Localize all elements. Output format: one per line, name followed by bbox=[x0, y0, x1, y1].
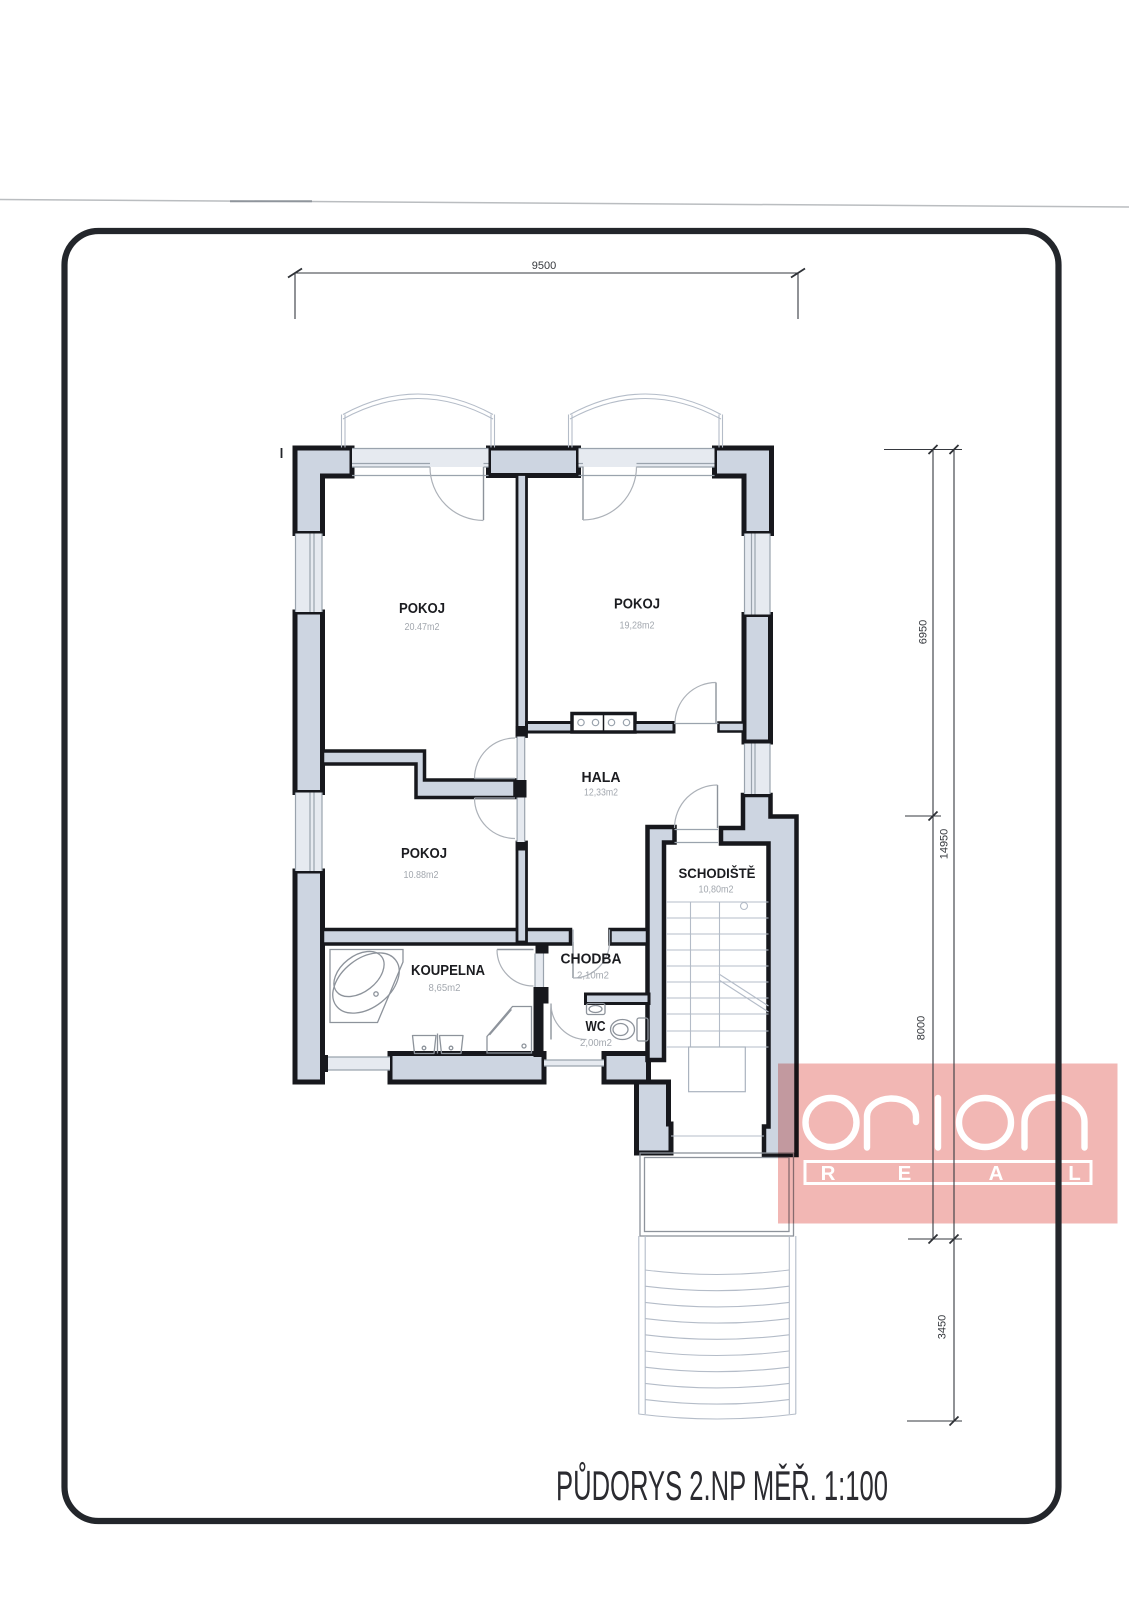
svg-text:R: R bbox=[821, 1162, 836, 1185]
svg-text:WC: WC bbox=[586, 1019, 606, 1035]
svg-text:CHODBA: CHODBA bbox=[561, 952, 623, 968]
svg-text:L: L bbox=[1068, 1162, 1081, 1185]
svg-text:2,10m2: 2,10m2 bbox=[577, 970, 609, 982]
svg-text:6950: 6950 bbox=[918, 620, 930, 644]
svg-text:POKOJ: POKOJ bbox=[614, 597, 660, 613]
svg-text:POKOJ: POKOJ bbox=[399, 601, 445, 617]
svg-text:12,33m2: 12,33m2 bbox=[584, 787, 618, 799]
svg-text:8000: 8000 bbox=[916, 1016, 928, 1040]
svg-text:A: A bbox=[989, 1162, 1004, 1185]
svg-text:3450: 3450 bbox=[937, 1315, 949, 1339]
svg-text:PŮDORYS 2.NP MĚŘ. 1:100: PŮDORYS 2.NP MĚŘ. 1:100 bbox=[556, 1460, 888, 1509]
svg-text:20.47m2: 20.47m2 bbox=[405, 621, 440, 633]
svg-text:8,65m2: 8,65m2 bbox=[429, 982, 461, 994]
svg-text:10.88m2: 10.88m2 bbox=[404, 869, 439, 881]
svg-text:KOUPELNA: KOUPELNA bbox=[411, 963, 485, 979]
svg-text:2,00m2: 2,00m2 bbox=[580, 1037, 612, 1049]
svg-text:9500: 9500 bbox=[532, 260, 556, 272]
svg-text:19,28m2: 19,28m2 bbox=[620, 620, 655, 632]
svg-text:POKOJ: POKOJ bbox=[401, 846, 447, 862]
svg-text:SCHODIŠTĚ: SCHODIŠTĚ bbox=[679, 864, 756, 881]
svg-text:HALA: HALA bbox=[582, 770, 622, 786]
svg-text:10,80m2: 10,80m2 bbox=[699, 884, 734, 896]
svg-text:E: E bbox=[898, 1162, 912, 1185]
svg-text:14950: 14950 bbox=[939, 829, 951, 860]
